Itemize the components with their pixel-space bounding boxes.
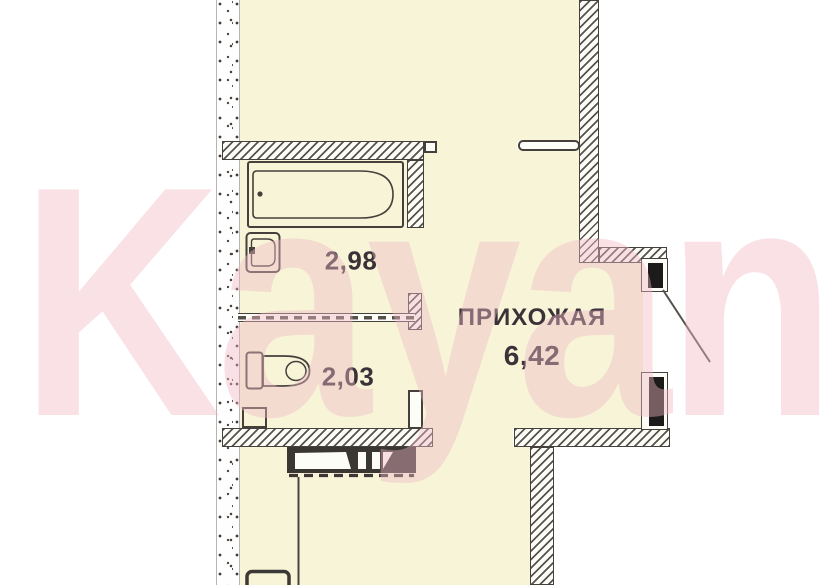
sink-icon bbox=[247, 233, 280, 272]
floor-plan: 2,98 2,03 ПРИХОЖАЯ 6,42 Kayan bbox=[0, 0, 828, 585]
bathroom-area-label: 2,98 bbox=[325, 246, 378, 277]
toilet-icon bbox=[247, 353, 310, 389]
hallway-area-label: 6,42 bbox=[504, 340, 561, 372]
bathtub-icon bbox=[248, 162, 403, 227]
fixtures-layer bbox=[0, 0, 828, 585]
bottom-furniture bbox=[247, 572, 289, 585]
wc-area-label: 2,03 bbox=[322, 362, 375, 393]
hallway-name-label: ПРИХОЖАЯ bbox=[458, 304, 607, 332]
entrance-door-leaf bbox=[663, 290, 710, 362]
built-in-cabinet bbox=[287, 447, 416, 476]
